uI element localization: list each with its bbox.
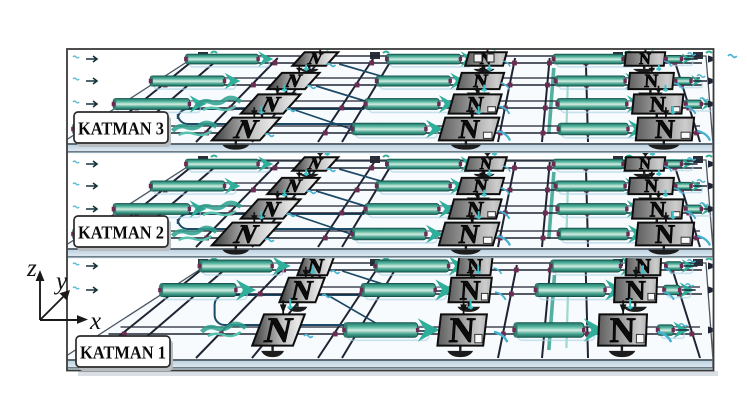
- svg-text:N: N: [639, 51, 652, 68]
- svg-text:N: N: [654, 114, 676, 144]
- svg-text:N: N: [654, 219, 676, 249]
- svg-text:KATMAN 2: KATMAN 2: [78, 223, 164, 243]
- svg-text:N: N: [448, 310, 477, 350]
- svg-text:KATMAN 1: KATMAN 1: [80, 343, 166, 363]
- svg-text:N: N: [625, 275, 646, 306]
- svg-text:N: N: [639, 156, 652, 173]
- svg-text:KATMAN 3: KATMAN 3: [78, 119, 164, 139]
- svg-text:x: x: [89, 308, 101, 335]
- svg-text:N: N: [609, 310, 636, 350]
- svg-text:z: z: [26, 255, 37, 282]
- svg-text:y: y: [53, 268, 68, 295]
